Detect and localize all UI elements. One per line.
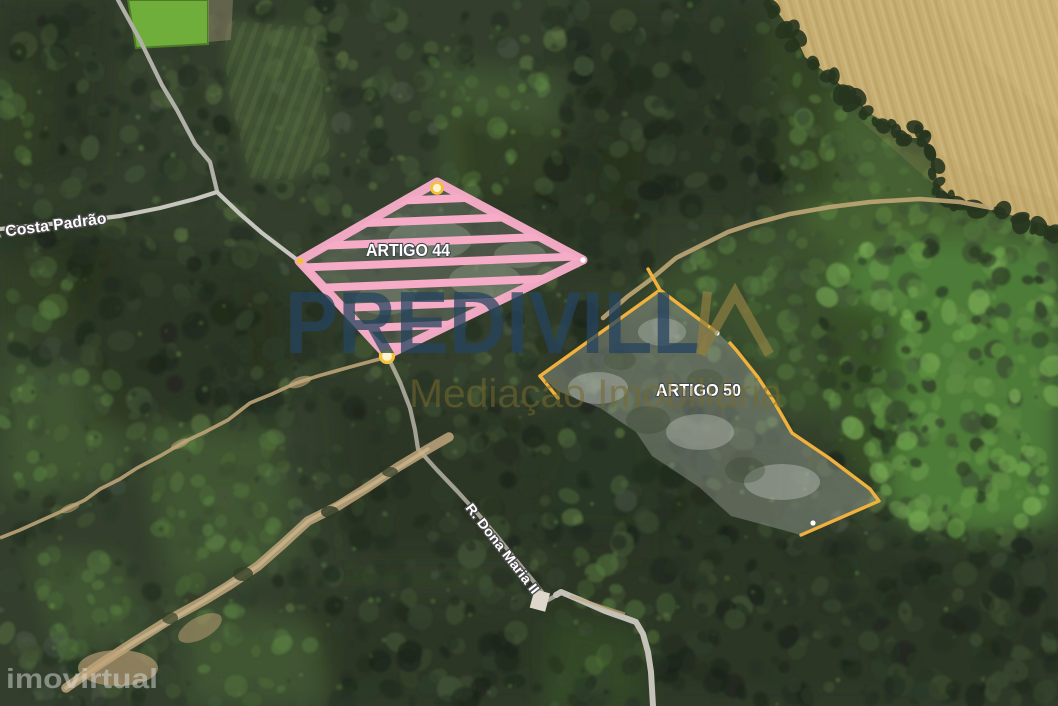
svg-text:Mediação Imobiliária: Mediação Imobiliária [409, 372, 784, 416]
svg-text:imovirtual: imovirtual [6, 663, 158, 694]
svg-text:ARTIGO 44: ARTIGO 44 [366, 240, 450, 260]
svg-text:PREDIVILL: PREDIVILL [285, 273, 701, 372]
